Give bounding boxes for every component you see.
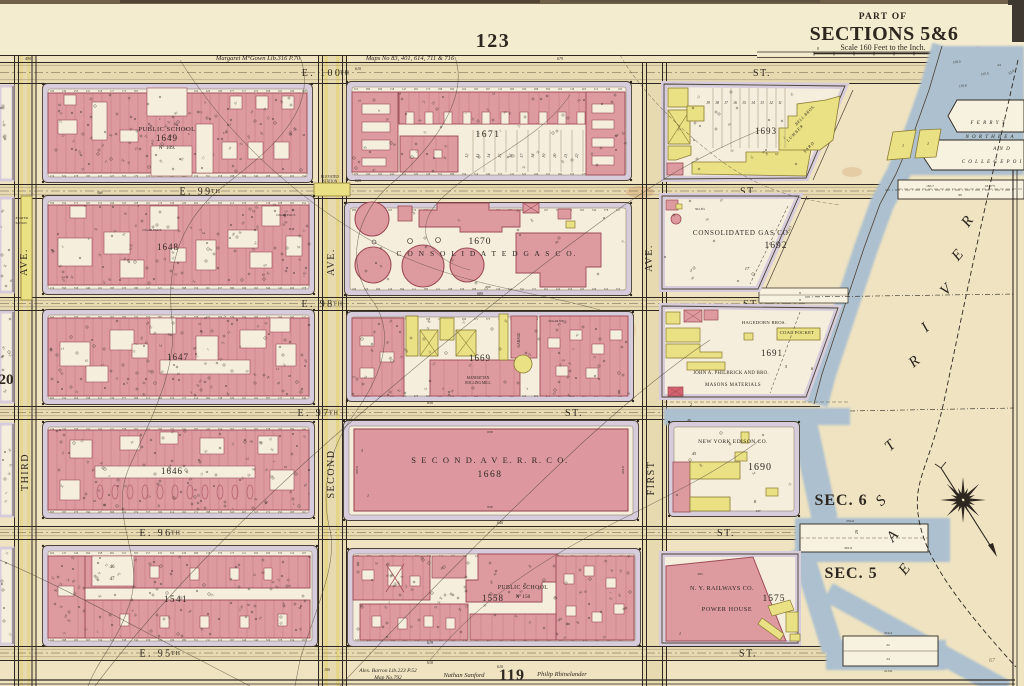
svg-text:1: 1 — [679, 631, 681, 636]
svg-text:1669: 1669 — [469, 353, 491, 363]
svg-text:278: 278 — [74, 175, 79, 178]
svg-text:254: 254 — [290, 639, 295, 642]
svg-text:300: 300 — [450, 88, 455, 91]
svg-text:CIGAR FACT.: CIGAR FACT. — [276, 213, 295, 217]
svg-text:340: 340 — [302, 397, 307, 400]
svg-text:630: 630 — [487, 430, 493, 434]
svg-text:290: 290 — [376, 288, 381, 291]
svg-text:171: 171 — [194, 511, 199, 514]
svg-text:303: 303 — [50, 511, 55, 514]
svg-text:378: 378 — [278, 639, 283, 642]
svg-text:COAL POCKET: COAL POCKET — [780, 330, 815, 335]
svg-text:194: 194 — [86, 511, 91, 514]
svg-text:256: 256 — [278, 511, 283, 514]
svg-text:169: 169 — [158, 511, 163, 514]
svg-text:TH: TH — [340, 70, 350, 76]
svg-text:257: 257 — [218, 287, 223, 290]
svg-text:240: 240 — [486, 173, 491, 176]
svg-text:24: 24 — [997, 63, 1001, 67]
svg-text:SEC. 6: SEC. 6 — [814, 492, 867, 509]
svg-text:154: 154 — [62, 397, 67, 400]
svg-text:392: 392 — [206, 397, 211, 400]
svg-text:323: 323 — [254, 511, 259, 514]
svg-text:213: 213 — [98, 397, 103, 400]
svg-text:PUBLIC SCHOOL: PUBLIC SCHOOL — [138, 126, 195, 133]
svg-text:351: 351 — [194, 639, 199, 642]
svg-text:0: 0 — [817, 46, 819, 51]
svg-text:375: 375 — [182, 397, 187, 400]
svg-text:22: 22 — [574, 153, 580, 158]
svg-text:183: 183 — [290, 511, 295, 514]
svg-text:Philip Rhinelander: Philip Rhinelander — [536, 671, 587, 678]
svg-text:680: 680 — [485, 285, 491, 289]
svg-text:351: 351 — [206, 175, 211, 178]
svg-text:334: 334 — [134, 639, 139, 642]
svg-text:320: 320 — [290, 397, 295, 400]
svg-text:199: 199 — [352, 288, 357, 291]
svg-text:ST.: ST. — [753, 68, 771, 79]
svg-text:201: 201 — [206, 287, 211, 290]
svg-text:369: 369 — [110, 511, 115, 514]
svg-text:301.6½: 301.6½ — [695, 207, 706, 211]
svg-text:102: 102 — [254, 397, 259, 400]
svg-text:289: 289 — [450, 173, 455, 176]
svg-text:JOHN A. PHILBRICK AND BRO.: JOHN A. PHILBRICK AND BRO. — [693, 371, 769, 376]
svg-text:210: 210 — [218, 639, 223, 642]
svg-text:243: 243 — [390, 173, 395, 176]
svg-text:179: 179 — [134, 175, 139, 178]
svg-text:183: 183 — [86, 175, 91, 178]
svg-text:619: 619 — [427, 640, 433, 645]
svg-text:1648: 1648 — [157, 242, 179, 252]
svg-text:FIRST: FIRST — [646, 461, 657, 496]
svg-text:124: 124 — [522, 395, 527, 398]
svg-text:1692: 1692 — [765, 241, 788, 251]
svg-text:2: 2 — [690, 402, 692, 407]
svg-text:289: 289 — [352, 209, 357, 212]
svg-text:288: 288 — [266, 175, 271, 178]
svg-text:99: 99 — [958, 193, 962, 197]
svg-text:ST.: ST. — [717, 528, 735, 539]
svg-text:1646: 1646 — [161, 466, 183, 476]
svg-text:180: 180 — [134, 287, 139, 290]
svg-text:274: 274 — [134, 511, 139, 514]
svg-text:207.6: 207.6 — [355, 466, 359, 474]
svg-text:230: 230 — [146, 639, 151, 642]
svg-text:202: 202 — [50, 397, 55, 400]
svg-text:121: 121 — [436, 288, 441, 291]
svg-text:394: 394 — [400, 288, 405, 291]
svg-text:204: 204 — [534, 395, 539, 398]
svg-text:394: 394 — [86, 552, 91, 555]
svg-text:1: 1 — [690, 268, 692, 273]
svg-text:205: 205 — [388, 209, 393, 212]
svg-text:293: 293 — [697, 572, 702, 576]
svg-text:158: 158 — [390, 88, 395, 91]
svg-text:386: 386 — [230, 287, 235, 290]
svg-text:163: 163 — [254, 287, 259, 290]
svg-text:258: 258 — [218, 175, 223, 178]
svg-text:3: 3 — [361, 448, 363, 453]
svg-text:185: 185 — [110, 287, 115, 290]
svg-text:STATION: STATION — [13, 221, 27, 225]
svg-text:205: 205 — [582, 88, 587, 91]
svg-text:CIGAR FACT.: CIGAR FACT. — [142, 228, 161, 232]
svg-text:326: 326 — [218, 511, 223, 514]
svg-text:335: 335 — [278, 552, 283, 555]
svg-text:334: 334 — [98, 639, 103, 642]
svg-text:119: 119 — [499, 667, 525, 684]
svg-text:329: 329 — [266, 639, 271, 642]
svg-text:640: 640 — [497, 520, 503, 525]
svg-text:197: 197 — [62, 511, 67, 514]
svg-text:309: 309 — [242, 175, 247, 178]
svg-text:8: 8 — [799, 298, 801, 302]
svg-text:620: 620 — [355, 178, 361, 183]
svg-text:277: 277 — [122, 397, 127, 400]
svg-text:191: 191 — [98, 287, 103, 290]
svg-text:383: 383 — [510, 88, 515, 91]
svg-text:395: 395 — [134, 552, 139, 555]
svg-text:1: 1 — [927, 141, 929, 146]
svg-text:SUGAR WF: SUGAR WF — [548, 319, 564, 323]
svg-text:138: 138 — [206, 552, 211, 555]
svg-text:45: 45 — [692, 451, 697, 456]
svg-text:379: 379 — [354, 173, 359, 176]
svg-text:40: 40 — [259, 122, 263, 126]
svg-text:108: 108 — [426, 173, 431, 176]
svg-text:MASONS MATERIALS: MASONS MATERIALS — [705, 383, 761, 388]
svg-text:N. Y. RAILWAYS CO.: N. Y. RAILWAYS CO. — [690, 585, 754, 592]
svg-text:121: 121 — [242, 552, 247, 555]
svg-text:S E C O N D. A V E. R. R.: S E C O N D. A V E. R. R. C O. — [411, 455, 569, 465]
svg-text:235: 235 — [158, 552, 163, 555]
svg-text:E. 95: E. 95 — [139, 648, 172, 659]
svg-text:398: 398 — [134, 397, 139, 400]
svg-text:136: 136 — [570, 88, 575, 91]
svg-text:20: 20 — [0, 372, 14, 388]
svg-text:257: 257 — [146, 552, 151, 555]
svg-text:AVE.: AVE. — [19, 248, 30, 276]
svg-text:213.6: 213.6 — [884, 669, 892, 673]
svg-text:320: 320 — [414, 173, 419, 176]
svg-text:15: 15 — [742, 101, 746, 105]
svg-text:304: 304 — [546, 88, 551, 91]
svg-text:389: 389 — [366, 88, 371, 91]
svg-text:201.6: 201.6 — [621, 466, 625, 474]
svg-text:374: 374 — [170, 397, 175, 400]
svg-text:223: 223 — [98, 175, 103, 178]
svg-text:174: 174 — [50, 175, 55, 178]
svg-text:193: 193 — [580, 288, 585, 291]
svg-text:256: 256 — [462, 173, 467, 176]
svg-text:146: 146 — [242, 639, 247, 642]
svg-text:679: 679 — [557, 56, 563, 61]
svg-text:156: 156 — [194, 175, 199, 178]
svg-text:288: 288 — [472, 288, 477, 291]
svg-text:9: 9 — [799, 291, 801, 295]
svg-text:17: 17 — [745, 266, 750, 271]
svg-text:358: 358 — [74, 287, 79, 290]
svg-text:350: 350 — [62, 287, 67, 290]
svg-text:182: 182 — [618, 88, 623, 91]
svg-text:337: 337 — [146, 511, 151, 514]
svg-text:111: 111 — [412, 288, 417, 291]
svg-text:AVE.: AVE. — [644, 244, 655, 272]
svg-text:344: 344 — [592, 209, 597, 212]
svg-text:173: 173 — [230, 552, 235, 555]
svg-text:310: 310 — [230, 511, 235, 514]
svg-text:TH: TH — [171, 530, 181, 536]
svg-text:E. 98: E. 98 — [301, 299, 334, 310]
svg-text:6th: 6th — [97, 190, 102, 195]
svg-text:175: 175 — [426, 88, 431, 91]
svg-text:338: 338 — [218, 397, 223, 400]
svg-text:154: 154 — [290, 552, 295, 555]
svg-text:12: 12 — [276, 367, 280, 371]
svg-text:188: 188 — [438, 88, 443, 91]
svg-text:Alex. Barron Lib.223 P.52: Alex. Barron Lib.223 P.52 — [358, 668, 417, 674]
svg-text:249: 249 — [86, 287, 91, 290]
svg-text:379: 379 — [218, 552, 223, 555]
svg-text:110: 110 — [510, 173, 515, 176]
svg-text:346: 346 — [254, 175, 259, 178]
svg-text:46: 46 — [110, 565, 116, 570]
svg-text:TH: TH — [171, 651, 181, 657]
svg-text:F E R R Y T: F E R R Y T — [969, 121, 1005, 126]
svg-text:387: 387 — [266, 397, 271, 400]
svg-text:211: 211 — [206, 639, 211, 642]
svg-text:POWER HOUSE: POWER HOUSE — [702, 606, 752, 613]
svg-text:280: 280 — [378, 88, 383, 91]
svg-text:188: 188 — [206, 511, 211, 514]
svg-text:219.4: 219.4 — [884, 631, 892, 635]
svg-text:E. 96: E. 96 — [139, 528, 172, 539]
svg-text:266: 266 — [290, 287, 295, 290]
svg-text:Scale 160 Feet to the Inch.: Scale 160 Feet to the Inch. — [840, 43, 925, 52]
svg-text:ST.: ST. — [739, 648, 757, 659]
svg-text:650: 650 — [427, 400, 433, 405]
svg-text:67: 67 — [989, 658, 996, 664]
svg-text:395: 395 — [580, 209, 585, 212]
svg-text:214: 214 — [170, 511, 175, 514]
svg-text:ROLLING MILL: ROLLING MILL — [465, 381, 490, 385]
svg-text:E. 97: E. 97 — [297, 408, 330, 419]
svg-text:17: 17 — [101, 363, 105, 367]
svg-text:108: 108 — [448, 288, 453, 291]
svg-text:397: 397 — [486, 88, 491, 91]
svg-text:137: 137 — [278, 397, 283, 400]
svg-text:AVE.: AVE. — [326, 248, 337, 276]
svg-text:106: 106 — [534, 173, 539, 176]
svg-text:341: 341 — [520, 288, 525, 291]
svg-text:ELEVATED: ELEVATED — [321, 175, 339, 179]
svg-text:17: 17 — [84, 204, 88, 208]
svg-text:THIRD: THIRD — [20, 453, 31, 491]
svg-text:288: 288 — [534, 88, 539, 91]
svg-text:310: 310 — [604, 288, 609, 291]
svg-text:1670: 1670 — [469, 237, 492, 247]
svg-text:143: 143 — [278, 287, 283, 290]
svg-text:12: 12 — [464, 153, 470, 158]
svg-text:14: 14 — [751, 101, 755, 105]
svg-text:301.9: 301.9 — [844, 546, 852, 550]
svg-text:385: 385 — [424, 288, 429, 291]
svg-text:279: 279 — [414, 395, 419, 398]
svg-text:100: 100 — [324, 667, 330, 672]
svg-text:SECOND: SECOND — [326, 449, 337, 498]
svg-text:193: 193 — [366, 173, 371, 176]
svg-text:63: 63 — [284, 465, 288, 469]
svg-text:Margaret M°Gown Lib.316 P.70: Margaret M°Gown Lib.316 P.70 — [215, 55, 301, 62]
svg-text:60: 60 — [247, 603, 251, 607]
svg-text:160: 160 — [522, 88, 527, 91]
svg-text:332: 332 — [570, 173, 575, 176]
svg-text:1: 1 — [902, 143, 904, 148]
svg-text:123: 123 — [476, 30, 511, 52]
svg-text:297: 297 — [230, 639, 235, 642]
svg-text:188: 188 — [230, 175, 235, 178]
svg-text:264: 264 — [74, 397, 79, 400]
svg-text:353: 353 — [354, 88, 359, 91]
svg-text:171: 171 — [266, 511, 271, 514]
svg-text:295: 295 — [290, 175, 295, 178]
svg-text:346: 346 — [74, 552, 79, 555]
svg-text:136: 136 — [496, 288, 501, 291]
svg-text:323: 323 — [546, 173, 551, 176]
svg-text:16: 16 — [733, 101, 737, 105]
svg-text:STATION: STATION — [323, 180, 338, 184]
svg-text:346: 346 — [266, 287, 271, 290]
svg-text:331: 331 — [122, 552, 127, 555]
svg-text:E. 100: E. 100 — [302, 68, 343, 79]
svg-text:167: 167 — [302, 552, 307, 555]
svg-text:163: 163 — [378, 173, 383, 176]
svg-text:144: 144 — [254, 639, 259, 642]
svg-text:96: 96 — [567, 622, 571, 626]
svg-text:319: 319 — [474, 173, 479, 176]
svg-text:198: 198 — [86, 397, 91, 400]
svg-text:204: 204 — [50, 552, 55, 555]
svg-text:165.7: 165.7 — [926, 184, 934, 188]
svg-text:163: 163 — [558, 88, 563, 91]
svg-text:256: 256 — [568, 288, 573, 291]
svg-text:610: 610 — [427, 660, 433, 665]
svg-text:154: 154 — [302, 175, 307, 178]
svg-text:133: 133 — [146, 175, 151, 178]
svg-text:398: 398 — [182, 287, 187, 290]
svg-text:338: 338 — [122, 639, 127, 642]
svg-text:229: 229 — [592, 288, 597, 291]
svg-text:38: 38 — [302, 133, 306, 137]
svg-text:350: 350 — [170, 552, 175, 555]
svg-text:336: 336 — [110, 397, 115, 400]
svg-text:21: 21 — [563, 153, 569, 158]
svg-text:24: 24 — [886, 657, 890, 661]
svg-text:1671: 1671 — [476, 130, 501, 140]
svg-text:1691: 1691 — [761, 348, 783, 358]
svg-text:289: 289 — [194, 552, 199, 555]
svg-text:126: 126 — [388, 288, 393, 291]
svg-text:282: 282 — [558, 173, 563, 176]
svg-text:137: 137 — [755, 509, 760, 513]
svg-text:295: 295 — [254, 552, 259, 555]
svg-text:630: 630 — [487, 505, 493, 509]
svg-text:213: 213 — [146, 397, 151, 400]
svg-text:147: 147 — [402, 88, 407, 91]
svg-text:HAGEDORN BROS.: HAGEDORN BROS. — [742, 320, 786, 325]
svg-text:19: 19 — [706, 101, 710, 105]
svg-text:196: 196 — [170, 639, 175, 642]
svg-text:167: 167 — [544, 209, 549, 212]
svg-text:C O L L E G E P O I: C O L L E G E P O I — [962, 160, 1023, 165]
svg-text:1: 1 — [367, 493, 369, 498]
svg-text:353: 353 — [122, 175, 127, 178]
svg-text:333: 333 — [355, 639, 360, 642]
svg-text:374: 374 — [616, 288, 621, 291]
svg-text:270: 270 — [74, 511, 79, 514]
svg-text:C O N S O L I D A T E D G A: C O N S O L I D A T E D G A S C O. — [396, 249, 577, 258]
svg-text:116: 116 — [498, 88, 503, 91]
svg-text:Map No.792: Map No.792 — [373, 675, 402, 681]
svg-text:47: 47 — [110, 577, 116, 582]
svg-text:162: 162 — [462, 88, 467, 91]
svg-text:680: 680 — [477, 291, 483, 296]
svg-text:MANHATTAN: MANHATTAN — [467, 376, 490, 380]
svg-text:225: 225 — [110, 175, 115, 178]
svg-text:305: 305 — [86, 639, 91, 642]
svg-text:12: 12 — [769, 101, 773, 105]
svg-text:SECTIONS 5&6: SECTIONS 5&6 — [810, 23, 959, 45]
svg-text:18: 18 — [715, 101, 719, 105]
svg-text:Nº 109.: Nº 109. — [159, 145, 176, 151]
svg-text:PART OF: PART OF — [859, 12, 908, 22]
svg-text:610: 610 — [355, 66, 361, 71]
svg-text:66: 66 — [93, 499, 97, 503]
svg-text:TH: TH — [333, 301, 343, 307]
svg-text:1649: 1649 — [156, 133, 178, 143]
svg-text:45: 45 — [239, 157, 243, 161]
svg-text:161: 161 — [242, 397, 247, 400]
svg-text:162: 162 — [182, 511, 187, 514]
svg-text:Nathan Sanford: Nathan Sanford — [442, 672, 485, 679]
svg-text:321: 321 — [158, 287, 163, 290]
svg-text:355: 355 — [438, 173, 443, 176]
svg-text:Maps No 83, 401, 614, 711 & 7: Maps No 83, 401, 614, 711 & 716 — [365, 55, 455, 62]
svg-text:281: 281 — [110, 552, 115, 555]
svg-text:117: 117 — [146, 287, 151, 290]
svg-text:265: 265 — [242, 511, 247, 514]
svg-text:182: 182 — [474, 88, 479, 91]
svg-text:320: 320 — [230, 397, 235, 400]
svg-text:SEC. 5: SEC. 5 — [824, 565, 877, 582]
svg-text:1668: 1668 — [478, 470, 503, 480]
svg-text:290: 290 — [266, 552, 271, 555]
svg-text:157: 157 — [532, 288, 537, 291]
svg-text:TH: TH — [329, 410, 339, 416]
svg-text:375: 375 — [498, 173, 503, 176]
svg-text:346: 346 — [606, 88, 611, 91]
svg-text:11: 11 — [778, 101, 782, 105]
svg-text:66: 66 — [58, 103, 62, 107]
svg-text:169: 169 — [242, 287, 247, 290]
svg-text:490: 490 — [25, 56, 31, 61]
svg-text:GARAGE: GARAGE — [517, 332, 521, 348]
svg-text:ST.: ST. — [565, 408, 583, 419]
svg-text:233: 233 — [122, 287, 127, 290]
svg-text:188: 188 — [62, 639, 67, 642]
svg-text:278: 278 — [302, 287, 307, 290]
